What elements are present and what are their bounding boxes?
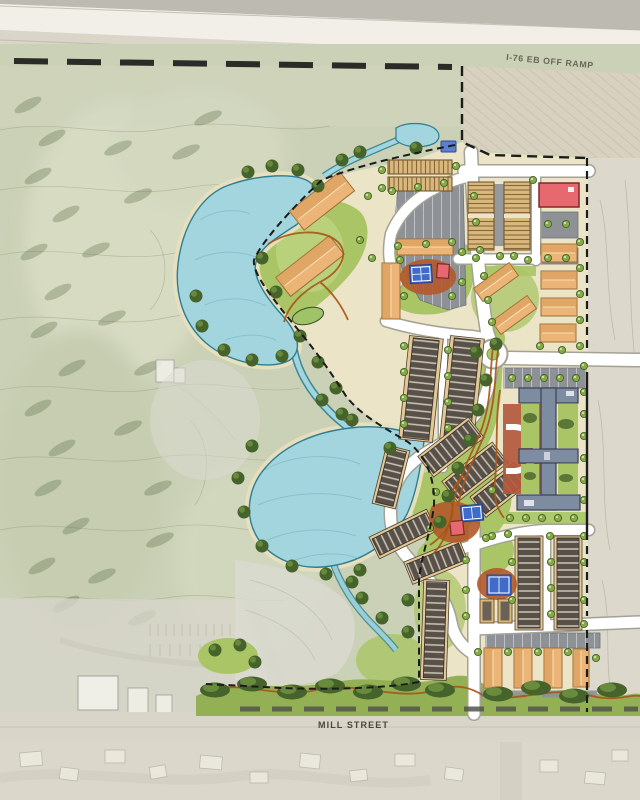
garage-building [480,599,494,623]
apartment-building [544,648,562,688]
existing-east-land [588,158,640,758]
apartment-building [382,263,400,319]
existing-neighborhood [0,740,640,800]
amenity-red-building [450,520,464,535]
amenity-red-building [437,264,450,279]
parking-drive [494,184,505,246]
road-label-mill-street: MILL STREET [318,720,389,730]
rowhome-row [420,580,449,681]
existing-building [156,695,172,714]
townhome-row [468,182,494,250]
rowhome-row [554,536,582,630]
apartment-building [541,271,577,289]
sport-court [460,504,483,522]
offramp-embankment [455,66,640,160]
existing-street [500,742,522,800]
apartment-building [541,298,577,316]
site-plan-map: I-76 EB OFF RAMP MILL STREET [0,0,640,800]
existing-building [78,676,118,710]
existing-building [128,688,148,714]
road-east-exit [506,358,640,360]
townhome-row [388,160,452,174]
rowhome-row [515,536,543,630]
apartment-building [484,648,502,688]
sport-court [410,264,433,283]
townhome-row [504,182,530,250]
sport-court [487,575,511,595]
school-campus [503,388,580,510]
clubhouse-red-building [539,183,579,207]
parking-lot-south [486,633,600,648]
apartment-building [573,649,589,687]
apartment-building [540,324,576,342]
